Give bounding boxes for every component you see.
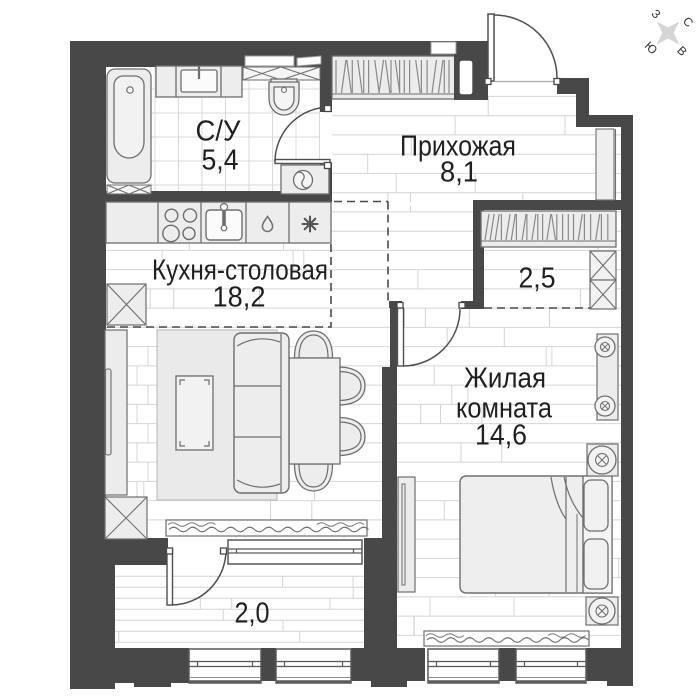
- svg-text:18,2: 18,2: [213, 282, 266, 314]
- svg-text:С/У: С/У: [196, 116, 242, 148]
- svg-text:8,1: 8,1: [440, 157, 478, 189]
- svg-text:14,6: 14,6: [475, 420, 527, 452]
- svg-text:2,0: 2,0: [235, 598, 270, 630]
- svg-text:Жилая: Жилая: [464, 363, 546, 395]
- svg-text:2,5: 2,5: [519, 263, 556, 295]
- svg-text:5,4: 5,4: [202, 145, 239, 177]
